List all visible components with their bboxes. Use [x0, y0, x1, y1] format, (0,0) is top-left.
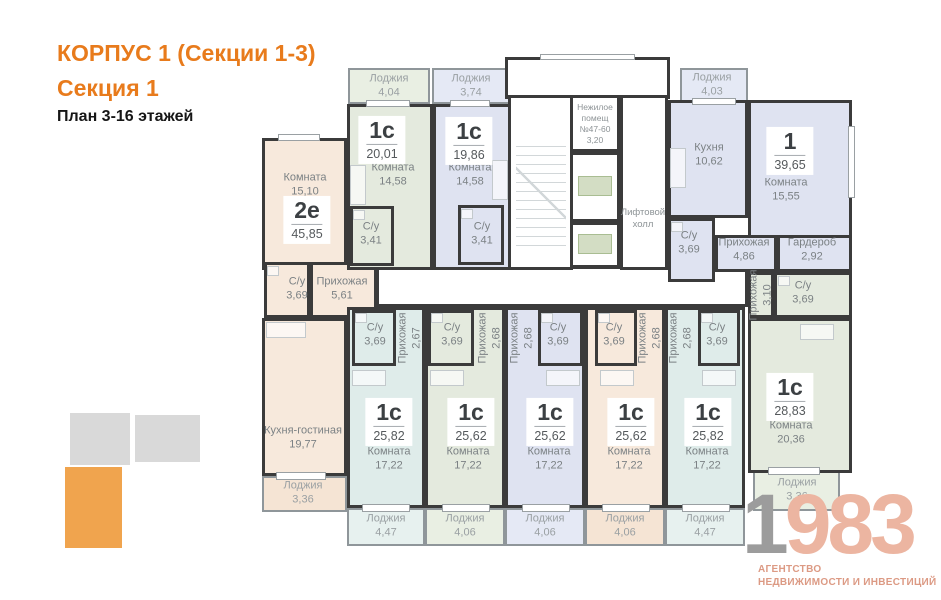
room-label-line: 17,22	[527, 459, 570, 473]
room-label-line: холл	[621, 219, 665, 231]
room-label: Лоджия4,04	[370, 72, 409, 100]
room-label: С/у3,69	[706, 321, 727, 349]
room-label-line: 17,22	[685, 459, 728, 473]
fixture	[702, 370, 736, 386]
apartment-type: 1с	[774, 375, 805, 399]
logo-digit-gray: 1	[742, 477, 785, 571]
window	[362, 504, 410, 512]
room-label-line: Комната	[685, 445, 728, 459]
room-label-line: С/у	[471, 220, 492, 234]
apartment-type-badge: 1с28,83	[766, 373, 813, 421]
room-label: С/у3,69	[792, 279, 813, 307]
room-label-line: 4,04	[370, 86, 409, 100]
window	[540, 54, 635, 60]
room-label: С/у3,69	[678, 229, 699, 257]
room-label-line: 17,22	[607, 459, 650, 473]
fixture	[778, 276, 790, 286]
room-label: Прихожая2,68	[636, 313, 664, 364]
apartment-type: 1с	[366, 118, 397, 142]
room-label: Кухня10,62	[694, 141, 723, 169]
room-label-line: 14,58	[371, 175, 414, 189]
room-label-line: 3,41	[471, 234, 492, 248]
room-label-line: Комната	[446, 445, 489, 459]
agency-logo: 1983 АГЕНТСТВО НЕДВИЖИМОСТИ И ИНВЕСТИЦИЙ	[742, 490, 937, 590]
fixture	[670, 148, 686, 188]
room-label: С/у3,69	[286, 275, 307, 303]
window	[442, 504, 490, 512]
room-label-line: 3,69	[441, 335, 462, 349]
apartment-type: 1с	[692, 400, 723, 424]
room-label-line: 2,67	[410, 313, 424, 364]
room-label: Лоджия3,36	[284, 479, 323, 507]
room-label-line: 20,36	[769, 433, 812, 447]
apartment-type-badge: 139,65	[766, 127, 813, 175]
room-label-line: 4,06	[446, 526, 485, 540]
room-label: С/у3,69	[547, 321, 568, 349]
room-label: С/у3,69	[364, 321, 385, 349]
room-label-line: С/у	[678, 229, 699, 243]
elevator-icon	[578, 234, 612, 254]
room-label: Прихожая2,68	[667, 313, 695, 364]
room-label: С/у3,69	[441, 321, 462, 349]
room-label-line: Комната	[283, 171, 326, 185]
room-label-line: 3,69	[678, 243, 699, 257]
room-label-line: 4,06	[606, 526, 645, 540]
apartment-type-badge: 1с25,82	[684, 398, 731, 446]
room-label-line: 2,68	[681, 313, 695, 364]
apartment-type: 1с	[373, 400, 404, 424]
fixture	[600, 370, 634, 386]
logo-digits-accent: 983	[785, 477, 913, 571]
room-label-line: Гардероб	[788, 236, 836, 250]
room-label: Комната17,22	[685, 445, 728, 473]
room-label-line: Прихожая	[476, 313, 490, 364]
room-label-line: Прихожая	[667, 313, 681, 364]
key-plan-section-3	[135, 415, 200, 462]
room-label-line: Лоджия	[452, 72, 491, 86]
room-label: Комната17,22	[527, 445, 570, 473]
room-label: Нежилоепомещ№47-603,20	[577, 102, 613, 146]
room-label-line: 3,36	[284, 493, 323, 507]
room-label: Прихожая2,67	[396, 313, 424, 364]
apartment-area: 20,01	[366, 144, 397, 161]
apartment-area: 25,62	[534, 426, 565, 443]
room-label: Комната17,22	[446, 445, 489, 473]
room-label-line: Комната	[764, 176, 807, 190]
room-label-line: Лоджия	[526, 512, 565, 526]
window	[848, 126, 855, 198]
room-label-line: 17,22	[446, 459, 489, 473]
apartment-type-badge: 1с25,82	[365, 398, 412, 446]
room-label-line: С/у	[286, 275, 307, 289]
room-label-line: 3,69	[706, 335, 727, 349]
room-label-line: Лоджия	[686, 512, 725, 526]
room-label-line: 4,86	[719, 250, 770, 264]
room-label-line: 2,68	[490, 313, 504, 364]
room-label-line: 3,69	[547, 335, 568, 349]
room-label: Лоджия4,03	[693, 71, 732, 99]
room-label-line: Комната	[367, 445, 410, 459]
room-entrance-vestibule	[505, 57, 670, 99]
room-label-line: Кухня-гостиная	[264, 424, 342, 438]
room-label: С/у3,41	[360, 220, 381, 248]
room-label-line: 4,06	[526, 526, 565, 540]
room-label: Комната15,10	[283, 171, 326, 199]
fixture	[461, 209, 473, 219]
room-label: Лоджия4,06	[526, 512, 565, 540]
apartment-type: 1с	[453, 119, 484, 143]
floors-subtitle: План 3-16 этажей	[57, 109, 316, 125]
window	[522, 504, 570, 512]
room-label: Комната17,22	[607, 445, 650, 473]
title-block: КОРПУС 1 (Секции 1-3) Секция 1 План 3-16…	[57, 42, 316, 125]
section-title: Секция 1	[57, 77, 316, 100]
room-label-line: 3,74	[452, 86, 491, 100]
apartment-type: 1	[774, 129, 805, 153]
room-label-line: Комната	[607, 445, 650, 459]
apartment-type: 1с	[534, 400, 565, 424]
room-label: Лоджия4,06	[606, 512, 645, 540]
apartment-type: 2е	[291, 198, 322, 222]
room-label-line: 3,41	[360, 234, 381, 248]
room-label-line: 3,69	[603, 335, 624, 349]
window	[692, 98, 736, 105]
fixture	[352, 370, 386, 386]
room-label: Лоджия4,47	[686, 512, 725, 540]
room-label: Лоджия4,47	[367, 512, 406, 540]
room-label-line: помещ	[577, 113, 613, 124]
room-label: Прихожая3,10	[747, 270, 775, 321]
room-label: Комната20,36	[769, 419, 812, 447]
room-label-line: С/у	[441, 321, 462, 335]
apartment-area: 25,82	[692, 426, 723, 443]
logo-tagline-line2: НЕДВИЖИМОСТИ И ИНВЕСТИЦИЙ	[758, 576, 937, 590]
window	[768, 467, 820, 475]
room-label-line: С/у	[792, 279, 813, 293]
key-plan-section-2	[70, 413, 130, 465]
room-label-line: 3,20	[577, 135, 613, 146]
room-label: С/у3,41	[471, 220, 492, 248]
room-label-line: Лоджия	[370, 72, 409, 86]
fixture	[353, 210, 365, 220]
room-label-line: Лифтовой	[621, 207, 665, 219]
room-label-line: 2,92	[788, 250, 836, 264]
room-label-line: Прихожая	[747, 270, 761, 321]
room-elevator-hall	[620, 95, 668, 270]
room-label-line: Прихожая	[636, 313, 650, 364]
room-label-line: Прихожая	[508, 313, 522, 364]
room-label-line: 19,77	[264, 438, 342, 452]
room-label-line: 3,69	[792, 293, 813, 307]
window	[278, 134, 320, 141]
room-label: Прихожая2,68	[508, 313, 536, 364]
room-label-line: С/у	[360, 220, 381, 234]
room-label-line: Прихожая	[317, 275, 368, 289]
room-apt-2e-kitchen-living	[262, 318, 347, 476]
room-label: Лифтовойхолл	[621, 207, 665, 231]
room-label-line: Лоджия	[367, 512, 406, 526]
room-label-line: 3,69	[364, 335, 385, 349]
fixture	[266, 322, 306, 338]
room-label-line: Комната	[769, 419, 812, 433]
fixture	[492, 160, 508, 200]
fixture	[546, 370, 580, 386]
fixture	[267, 266, 279, 276]
apartment-area: 39,65	[774, 155, 805, 172]
apartment-area: 25,62	[455, 426, 486, 443]
apartment-type-badge: 1с25,62	[526, 398, 573, 446]
room-label-line: Прихожая	[719, 236, 770, 250]
room-label-line: Лоджия	[284, 479, 323, 493]
room-label-line: Лоджия	[693, 71, 732, 85]
building-title: КОРПУС 1 (Секции 1-3)	[57, 42, 316, 65]
room-label: Прихожая5,61	[317, 275, 368, 303]
room-label-line: 3,10	[761, 270, 775, 321]
room-label: Гардероб2,92	[788, 236, 836, 264]
room-label-line: 4,47	[367, 526, 406, 540]
apartment-area: 19,86	[453, 145, 484, 162]
room-label: Прихожая4,86	[719, 236, 770, 264]
room-label-line: 2,68	[650, 313, 664, 364]
room-label-line: Нежилое	[577, 102, 613, 113]
room-label: Комната14,58	[448, 161, 491, 189]
room-label: Лоджия4,06	[446, 512, 485, 540]
apartment-type-badge: 2е45,85	[283, 196, 330, 244]
room-label-line: 3,69	[286, 289, 307, 303]
fixture	[350, 165, 366, 205]
room-label-line: С/у	[603, 321, 624, 335]
room-label-line: 4,47	[686, 526, 725, 540]
apartment-type-badge: 1с25,62	[607, 398, 654, 446]
room-label: Кухня-гостиная19,77	[264, 424, 342, 452]
apartment-area: 25,62	[615, 426, 646, 443]
apartment-area: 45,85	[291, 224, 322, 241]
apartment-area: 25,82	[373, 426, 404, 443]
room-label: Комната17,22	[367, 445, 410, 473]
room-label-line: С/у	[364, 321, 385, 335]
key-plan-section-1-highlight	[65, 467, 122, 548]
elevator-icon	[578, 176, 612, 196]
room-label-line: Лоджия	[446, 512, 485, 526]
apartment-type-badge: 1с25,62	[447, 398, 494, 446]
room-label-line: Комната	[527, 445, 570, 459]
room-label-line: Прихожая	[396, 313, 410, 364]
fixture	[430, 370, 464, 386]
room-label-line: 14,58	[448, 175, 491, 189]
apartment-type-badge: 1с20,01	[358, 116, 405, 164]
room-label-line: 10,62	[694, 155, 723, 169]
room-label-line: Кухня	[694, 141, 723, 155]
window	[450, 100, 490, 107]
room-label-line: 2,68	[522, 313, 536, 364]
window	[366, 100, 410, 107]
room-label: Прихожая2,68	[476, 313, 504, 364]
fixture	[800, 324, 834, 340]
apartment-type-badge: 1с19,86	[445, 117, 492, 165]
logo-digits: 1983	[742, 490, 937, 559]
apartment-type: 1с	[615, 400, 646, 424]
room-label-line: 5,61	[317, 289, 368, 303]
room-label-line: 15,55	[764, 190, 807, 204]
room-label: Комната15,55	[764, 176, 807, 204]
room-label: Комната14,58	[371, 161, 414, 189]
apartment-area: 28,83	[774, 401, 805, 418]
apartment-type: 1с	[455, 400, 486, 424]
room-label-line: Лоджия	[606, 512, 645, 526]
room-label-line: С/у	[706, 321, 727, 335]
window	[602, 504, 650, 512]
room-label-line: №47-60	[577, 124, 613, 135]
room-label-line: С/у	[547, 321, 568, 335]
stairs-icon	[516, 138, 566, 248]
room-label-line: 17,22	[367, 459, 410, 473]
room-label: С/у3,69	[603, 321, 624, 349]
room-label-line: 4,03	[693, 85, 732, 99]
room-label: Лоджия3,74	[452, 72, 491, 100]
window	[682, 504, 730, 512]
